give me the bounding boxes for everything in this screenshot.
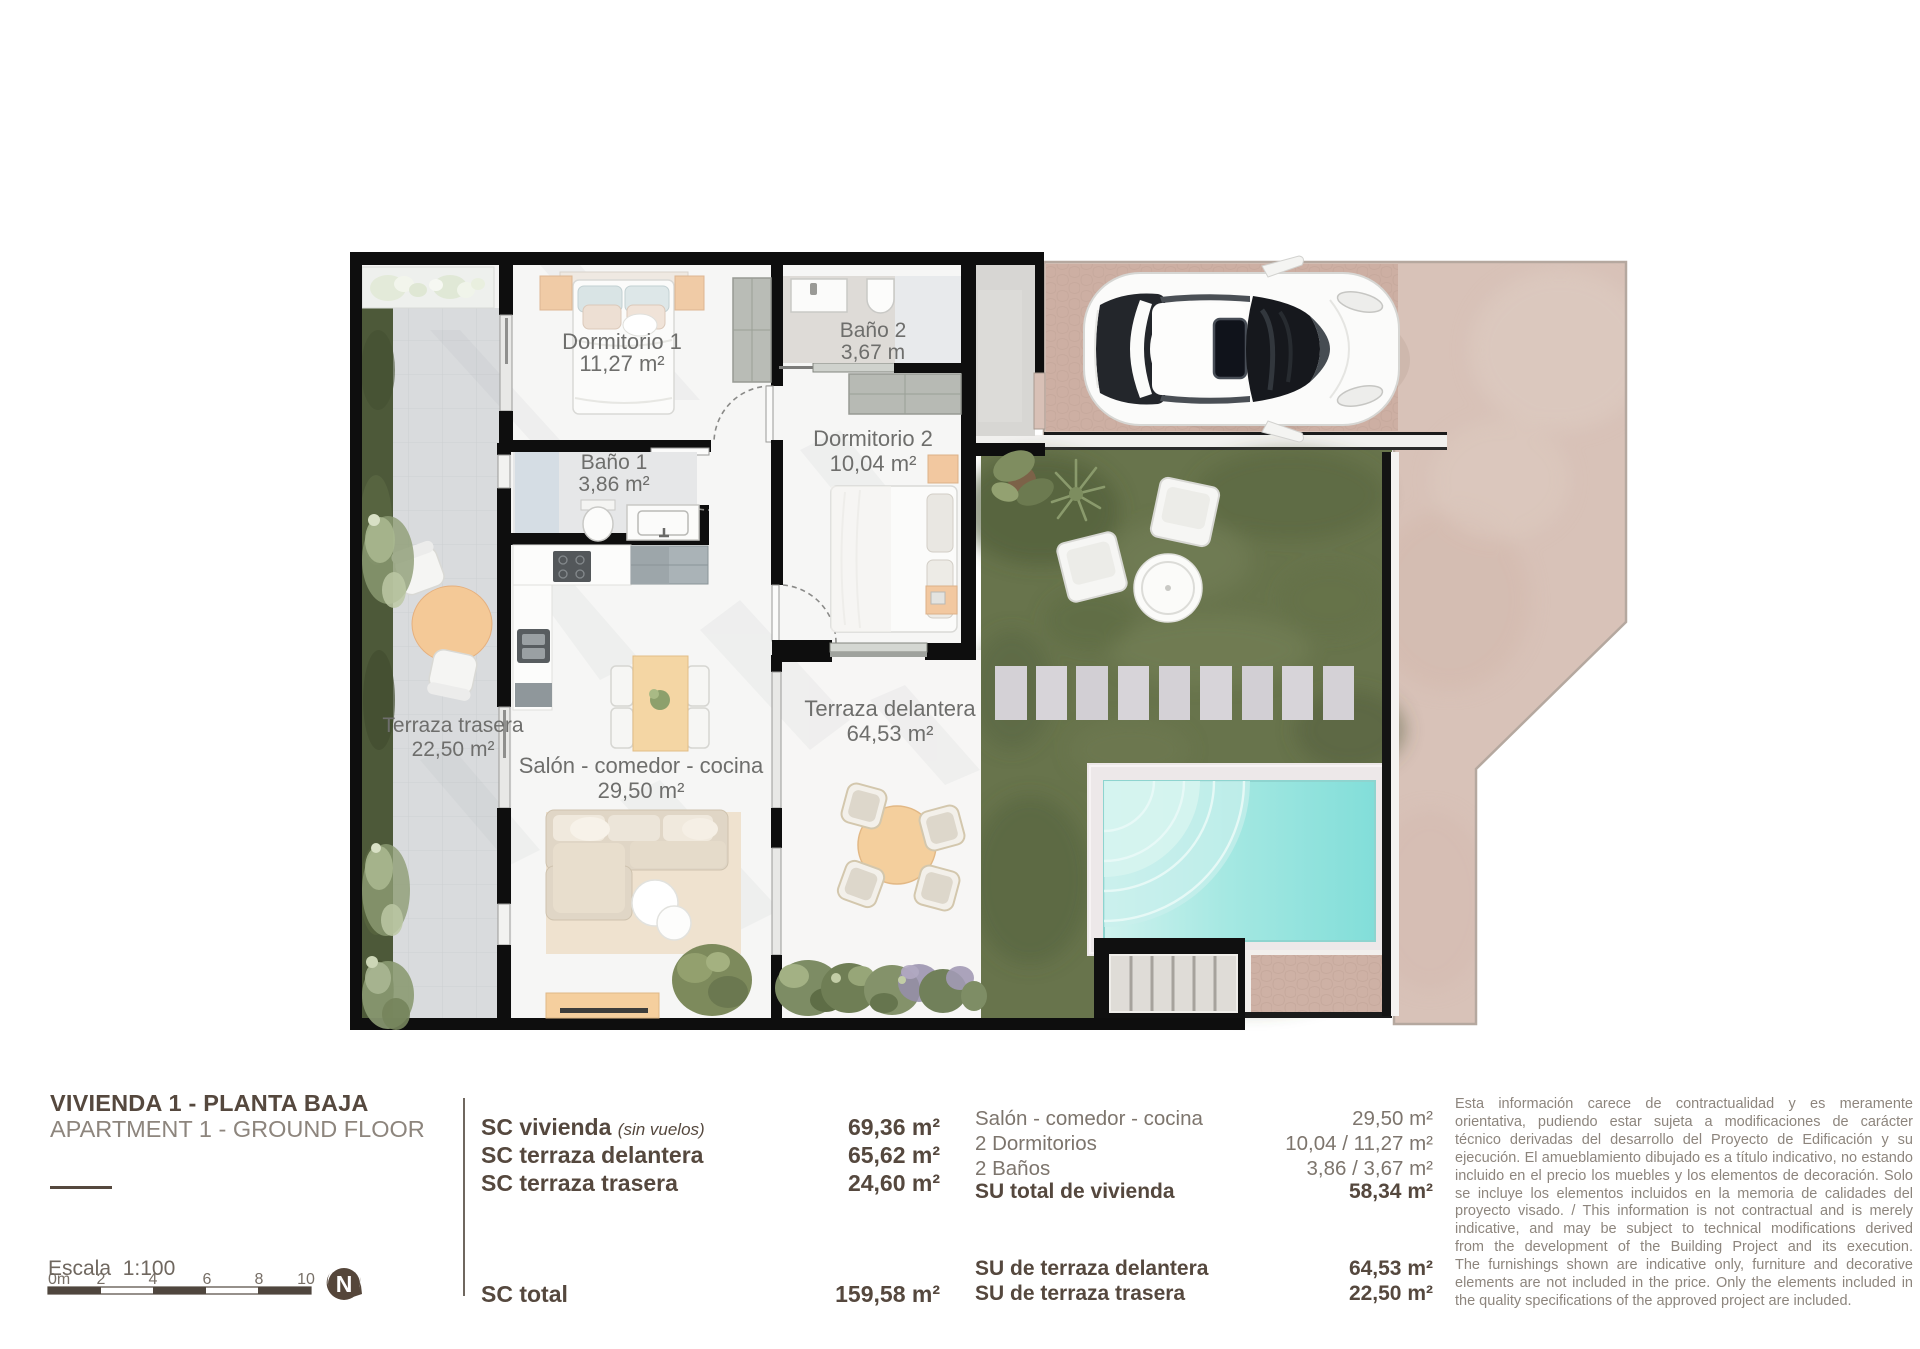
svg-text:6: 6 <box>203 1271 212 1288</box>
svg-text:Baño 2: Baño 2 <box>840 319 907 342</box>
svg-text:N: N <box>336 1271 353 1297</box>
svg-text:Terraza trasera: Terraza trasera <box>382 714 524 737</box>
svg-text:10: 10 <box>297 1271 315 1288</box>
svg-text:3,67 m: 3,67 m <box>841 341 905 364</box>
svg-text:Dormitorio 2: Dormitorio 2 <box>813 426 933 451</box>
svg-text:Baño 1: Baño 1 <box>581 451 648 474</box>
svg-text:Terraza delantera: Terraza delantera <box>804 696 976 721</box>
svg-text:Salón - comedor - cocina: Salón - comedor - cocina <box>519 753 764 778</box>
svg-text:10,04 m²: 10,04 m² <box>830 451 917 476</box>
svg-text:8: 8 <box>255 1271 264 1288</box>
svg-text:64,53 m²: 64,53 m² <box>847 721 934 746</box>
svg-text:29,50 m²: 29,50 m² <box>598 778 685 803</box>
svg-text:22,50 m²: 22,50 m² <box>412 738 495 761</box>
svg-text:3,86 m²: 3,86 m² <box>578 473 649 496</box>
svg-text:11,27 m²: 11,27 m² <box>579 351 664 376</box>
